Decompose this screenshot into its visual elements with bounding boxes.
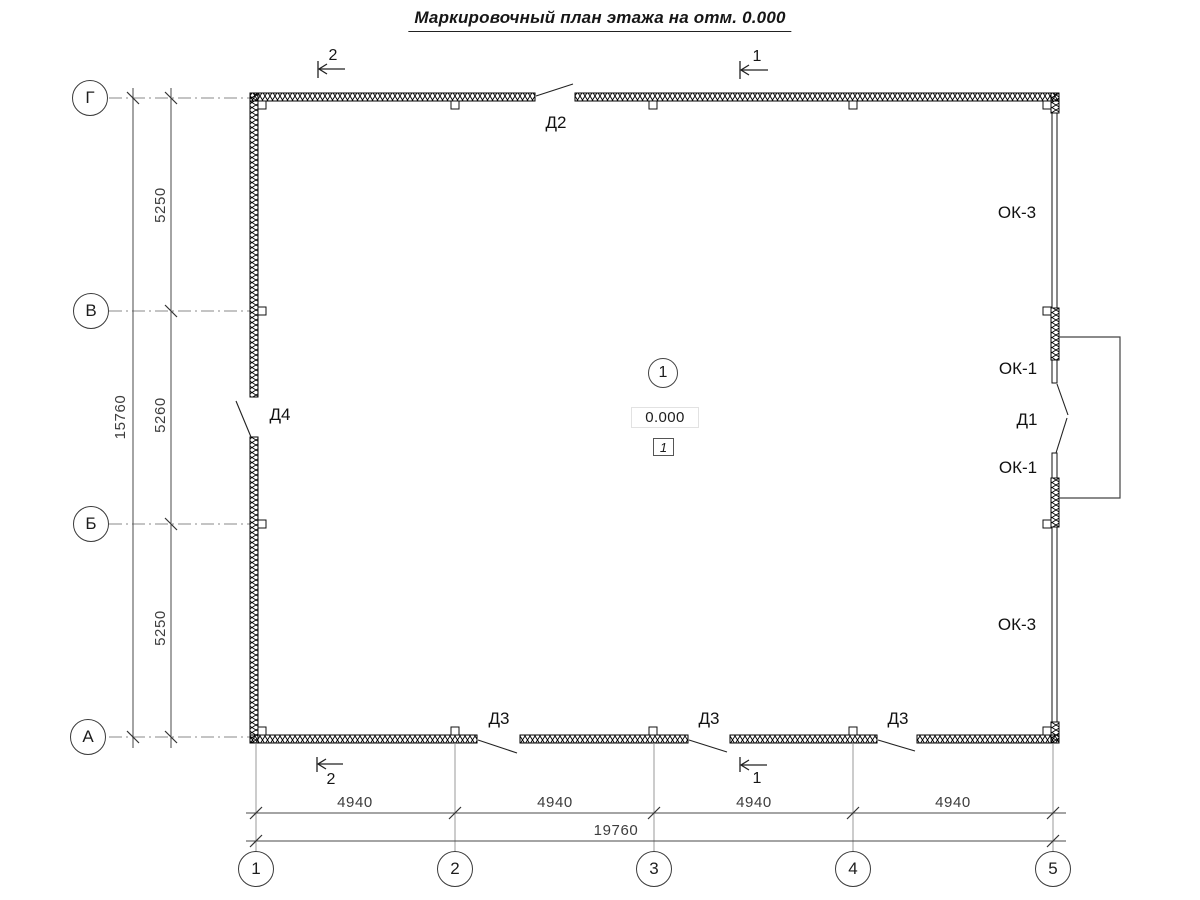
floor-plan-canvas: Маркировочный план этажа на отм. 0.000 Г… xyxy=(0,0,1200,900)
dim-h-total: 19760 xyxy=(581,823,651,839)
dim-v-segment-1: 5250 xyxy=(153,175,169,235)
plan-linework xyxy=(0,0,1200,900)
dim-h-segment-4: 4940 xyxy=(923,795,983,811)
room-zone-box: 1 xyxy=(653,438,674,456)
room-number-circle: 1 xyxy=(648,358,678,388)
section-label-1-top: 1 xyxy=(747,48,767,65)
dim-h-segment-2: 4940 xyxy=(525,795,585,811)
door-mark-d3-2: Д3 xyxy=(687,709,731,728)
dim-h-segment-1: 4940 xyxy=(325,795,385,811)
axis-row-b-label: Б xyxy=(85,514,96,534)
axis-col-4-label: 4 xyxy=(848,859,857,879)
axis-row-a-label: А xyxy=(82,727,93,747)
door-mark-d3-3: Д3 xyxy=(876,709,920,728)
window-mark-ok1-top: ОК-1 xyxy=(988,359,1048,378)
room-zone: 1 xyxy=(660,440,667,455)
window-mark-ok3-bottom: ОК-3 xyxy=(987,615,1047,634)
axis-lines xyxy=(109,98,251,737)
window-mark-ok3-top: ОК-3 xyxy=(987,203,1047,222)
section-label-2-bottom: 2 xyxy=(321,771,341,788)
axis-col-1-label: 1 xyxy=(251,859,260,879)
axis-row-v-label: В xyxy=(85,301,96,321)
dimension-lines xyxy=(133,88,1066,841)
section-label-1-bottom: 1 xyxy=(747,770,767,787)
axis-row-v: В xyxy=(73,293,109,329)
entry-porch xyxy=(1059,337,1120,498)
axis-col-1: 1 xyxy=(238,851,274,887)
door-mark-d2: Д2 xyxy=(534,113,578,132)
axis-col-2-label: 2 xyxy=(450,859,459,879)
dim-v-segment-2: 5260 xyxy=(153,385,169,445)
axis-col-3-label: 3 xyxy=(649,859,658,879)
axis-row-g-label: Г xyxy=(85,88,94,108)
axis-col-5-label: 5 xyxy=(1048,859,1057,879)
dimension-ticks xyxy=(127,92,1059,847)
axis-col-3: 3 xyxy=(636,851,672,887)
door-mark-d3-1: Д3 xyxy=(477,709,521,728)
axis-row-a: А xyxy=(70,719,106,755)
axis-col-2: 2 xyxy=(437,851,473,887)
dim-h-segment-3: 4940 xyxy=(724,795,784,811)
window-mark-ok1-bottom: ОК-1 xyxy=(988,458,1048,477)
room-elevation: 0.000 xyxy=(631,407,699,428)
dim-v-total: 15760 xyxy=(113,382,129,452)
door-mark-d4: Д4 xyxy=(258,405,302,424)
axis-col-4: 4 xyxy=(835,851,871,887)
axis-col-5: 5 xyxy=(1035,851,1071,887)
dim-v-segment-3: 5250 xyxy=(153,598,169,658)
axis-row-b: Б xyxy=(73,506,109,542)
section-arrows xyxy=(317,61,768,772)
room-number: 1 xyxy=(659,364,668,382)
window-lines xyxy=(1052,113,1057,722)
door-mark-d1: Д1 xyxy=(1005,410,1049,429)
section-label-2-top: 2 xyxy=(323,47,343,64)
axis-row-g: Г xyxy=(72,80,108,116)
page-title: Маркировочный план этажа на отм. 0.000 xyxy=(408,8,791,32)
